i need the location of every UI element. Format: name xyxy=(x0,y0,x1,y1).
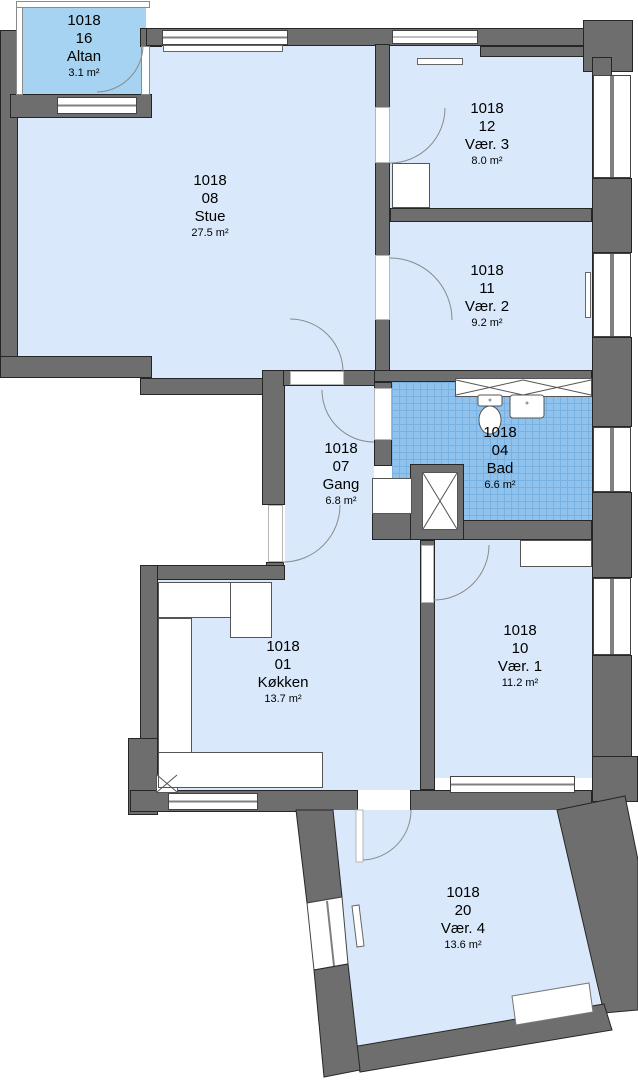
room-label-gang: 1018 07 Gang 6.8 m² xyxy=(281,440,401,508)
room-name: Vær. 1 xyxy=(460,658,580,676)
window-mullion xyxy=(327,901,334,966)
room-label-bad: 1018 04 Bad 6.6 m² xyxy=(440,424,560,492)
room-label-vaer3: 1018 12 Vær. 3 8.0 m² xyxy=(427,100,547,168)
room-area: 9.2 m² xyxy=(427,316,547,330)
kitchen-counter xyxy=(158,618,192,754)
window xyxy=(593,578,631,655)
radiator xyxy=(352,905,364,947)
window xyxy=(162,30,288,45)
wall-vaer4-right xyxy=(557,796,638,1013)
room-label-stue: 1018 08 Stue 27.5 m² xyxy=(150,172,270,240)
kitchen-counter xyxy=(158,752,323,788)
room-number: 16 xyxy=(24,30,144,48)
wall-vaer4-bottom xyxy=(352,1004,612,1072)
balcony-parapet xyxy=(16,1,150,8)
window xyxy=(593,253,631,337)
balcony-parapet xyxy=(16,1,23,95)
kitchen-appliance xyxy=(230,582,272,638)
radiator xyxy=(163,45,283,52)
room-area: 27.5 m² xyxy=(150,226,270,240)
room-name: Vær. 2 xyxy=(427,298,547,316)
wall xyxy=(410,790,592,812)
wall-vaer4-left-upper xyxy=(296,810,342,903)
room-number: 11 xyxy=(427,280,547,298)
room-area: 11.2 m² xyxy=(460,676,580,690)
wall xyxy=(142,565,285,580)
room-area: 13.7 m² xyxy=(223,692,343,706)
room-number: 10 xyxy=(460,640,580,658)
room-area: 13.6 m² xyxy=(403,938,523,952)
door-leaf-bad xyxy=(374,388,392,440)
room-fill-stue-left xyxy=(18,118,146,358)
window xyxy=(57,97,137,114)
wall-pillar xyxy=(592,492,632,578)
room-name: Bad xyxy=(440,460,560,478)
room-area: 3.1 m² xyxy=(24,66,144,80)
room-label-altan: 1018 16 Altan 3.1 m² xyxy=(24,12,144,80)
room-number: 07 xyxy=(281,458,401,476)
room-name: Stue xyxy=(150,208,270,226)
radiator xyxy=(417,58,463,65)
window-vaer4 xyxy=(307,897,348,970)
wall xyxy=(480,46,585,57)
floor-plan: 1018 16 Altan 3.1 m² 1018 08 Stue 27.5 m… xyxy=(0,0,638,1080)
wall xyxy=(375,44,390,386)
wardrobe xyxy=(520,540,592,567)
room-number: 04 xyxy=(440,442,560,460)
room-area: 8.0 m² xyxy=(427,154,547,168)
window xyxy=(593,427,631,492)
wall-pillar xyxy=(592,756,638,802)
door-leaf-vaer2 xyxy=(375,255,390,320)
door-leaf-vaer4 xyxy=(356,810,363,862)
bath-cabinet-hatched xyxy=(455,378,592,397)
window xyxy=(392,30,478,44)
door-leaf-vaer1 xyxy=(421,545,434,603)
room-number: 08 xyxy=(150,190,270,208)
window xyxy=(593,75,631,178)
room-id: 1018 xyxy=(427,100,547,118)
room-name: Altan xyxy=(24,48,144,66)
wall xyxy=(390,208,592,222)
wall-pillar xyxy=(592,655,632,760)
door-opening-stue xyxy=(290,371,344,385)
wall xyxy=(0,356,152,378)
room-name: Vær. 4 xyxy=(403,920,523,938)
room-fill-passage xyxy=(285,540,420,580)
window xyxy=(450,776,575,793)
room-number: 12 xyxy=(427,118,547,136)
room-number: 20 xyxy=(403,902,523,920)
room-id: 1018 xyxy=(150,172,270,190)
room-name: Køkken xyxy=(223,674,343,692)
furniture-vaer4 xyxy=(512,983,593,1025)
room-label-kokken: 1018 01 Køkken 13.7 m² xyxy=(223,638,343,706)
room-area: 6.8 m² xyxy=(281,494,401,508)
room-id: 1018 xyxy=(24,12,144,30)
entrance-door-leaf xyxy=(268,505,283,562)
wall-vaer4-left-lower xyxy=(314,964,360,1077)
room-area: 6.6 m² xyxy=(440,478,560,492)
room-label-vaer2: 1018 11 Vær. 2 9.2 m² xyxy=(427,262,547,330)
window xyxy=(168,793,258,810)
room-name: Vær. 3 xyxy=(427,136,547,154)
room-label-vaer4: 1018 20 Vær. 4 13.6 m² xyxy=(403,884,523,952)
wardrobe xyxy=(392,163,430,208)
radiator xyxy=(585,272,591,318)
wall-pillar xyxy=(592,337,632,427)
room-id: 1018 xyxy=(427,262,547,280)
room-id: 1018 xyxy=(440,424,560,442)
room-id: 1018 xyxy=(223,638,343,656)
wall-pillar xyxy=(592,178,632,253)
door-leaf-vaer3 xyxy=(375,107,390,163)
door-swing-arc xyxy=(363,810,411,860)
room-id: 1018 xyxy=(403,884,523,902)
room-id: 1018 xyxy=(281,440,401,458)
room-id: 1018 xyxy=(460,622,580,640)
room-label-vaer1: 1018 10 Vær. 1 11.2 m² xyxy=(460,622,580,690)
room-name: Gang xyxy=(281,476,401,494)
room-number: 01 xyxy=(223,656,343,674)
